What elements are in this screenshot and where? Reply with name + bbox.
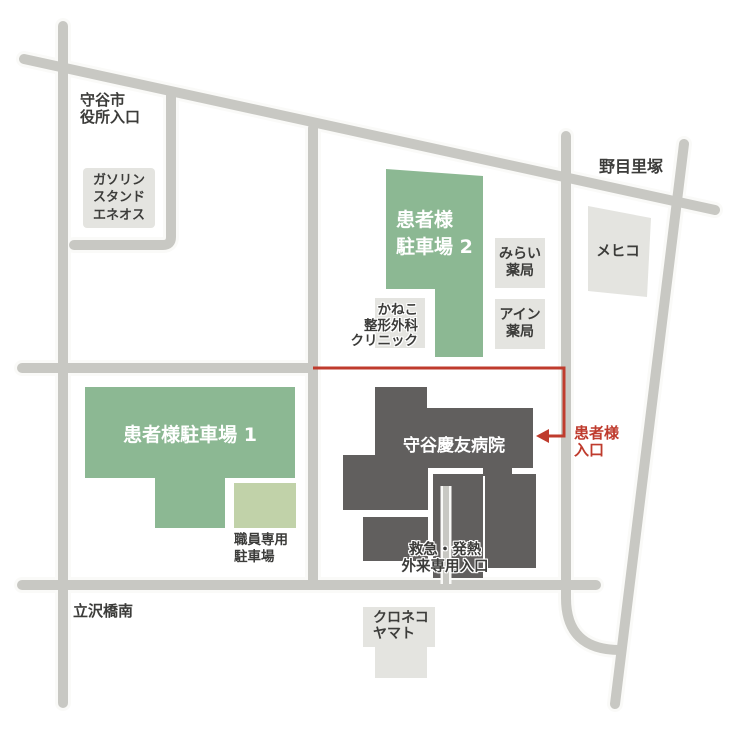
parking2-line2: 駐車場 2: [396, 234, 473, 261]
kaneko-clinic-label: かねこ 整形外科 クリニック: [330, 303, 418, 350]
kuroneko-yamato-label: クロネコ ヤマト: [373, 611, 429, 642]
route-arrow-icon: [536, 429, 549, 443]
mirai-line2: 薬局: [506, 263, 534, 280]
tatsuzawa-label: 立沢橋南: [73, 600, 133, 621]
patient-entrance-line2: 入口: [574, 442, 619, 459]
kaneko-line3: クリニック: [330, 334, 418, 350]
mirai-pharmacy-label: みらい 薬局: [495, 238, 545, 288]
nomesato-text: 野目里塚: [599, 157, 663, 176]
kuroneko-line2: ヤマト: [373, 627, 429, 643]
nomesato-label: 野目里塚: [599, 153, 663, 177]
gas-station-line2: スタンド: [93, 189, 145, 207]
city-hall-label: 守谷市 役所入口: [80, 92, 140, 126]
mirai-line1: みらい: [499, 246, 541, 263]
staff-parking-line2: 駐車場: [234, 549, 288, 566]
gas-station-label: ガソリン スタンド エネオス: [83, 168, 155, 228]
kaneko-line2: 整形外科: [330, 319, 418, 335]
hospital-west-wing: [343, 455, 428, 510]
hospital-wing-connector: [483, 462, 512, 476]
staff-parking-area: [234, 483, 296, 528]
patient-entrance-line1: 患者様: [574, 425, 619, 442]
city-hall-line1: 守谷市: [80, 92, 140, 109]
city-hall-line2: 役所入口: [80, 109, 140, 126]
ain-pharmacy-label: アイン 薬局: [495, 299, 545, 349]
kaneko-line1: かねこ: [330, 303, 418, 319]
parking1-text: 患者様駐車場 1: [123, 424, 257, 446]
ain-line1: アイン: [499, 307, 540, 324]
parking2-line1: 患者様: [396, 207, 473, 234]
tatsuzawa-text: 立沢橋南: [73, 602, 133, 620]
staff-parking-label: 職員専用 駐車場: [234, 532, 288, 565]
gas-station-line3: エネオス: [93, 207, 145, 225]
patient-parking1-label: 患者様駐車場 1: [85, 420, 295, 447]
hospital-area-map: 守谷市 役所入口 ガソリン スタンド エネオス 患者様 駐車場 2 かねこ 整形…: [0, 0, 740, 740]
staff-parking-line1: 職員専用: [234, 532, 288, 549]
emergency-line2: 外来専用入口: [385, 559, 505, 576]
kuroneko-line1: クロネコ: [373, 611, 429, 627]
hospital-label: 守谷慶友病院: [375, 431, 533, 456]
mehico-label: メヒコ: [588, 206, 648, 294]
emergency-entrance-label: 救急・発熱 外来専用入口: [385, 542, 505, 576]
gas-station-line1: ガソリン: [93, 172, 145, 190]
patient-entrance-label: 患者様 入口: [574, 425, 619, 458]
hospital-name-text: 守谷慶友病院: [403, 436, 505, 456]
ain-line2: 薬局: [506, 324, 534, 341]
mehico-name: メヒコ: [596, 240, 640, 261]
emergency-line1: 救急・発熱: [385, 542, 505, 559]
patient-parking2-label: 患者様 駐車場 2: [396, 207, 473, 261]
